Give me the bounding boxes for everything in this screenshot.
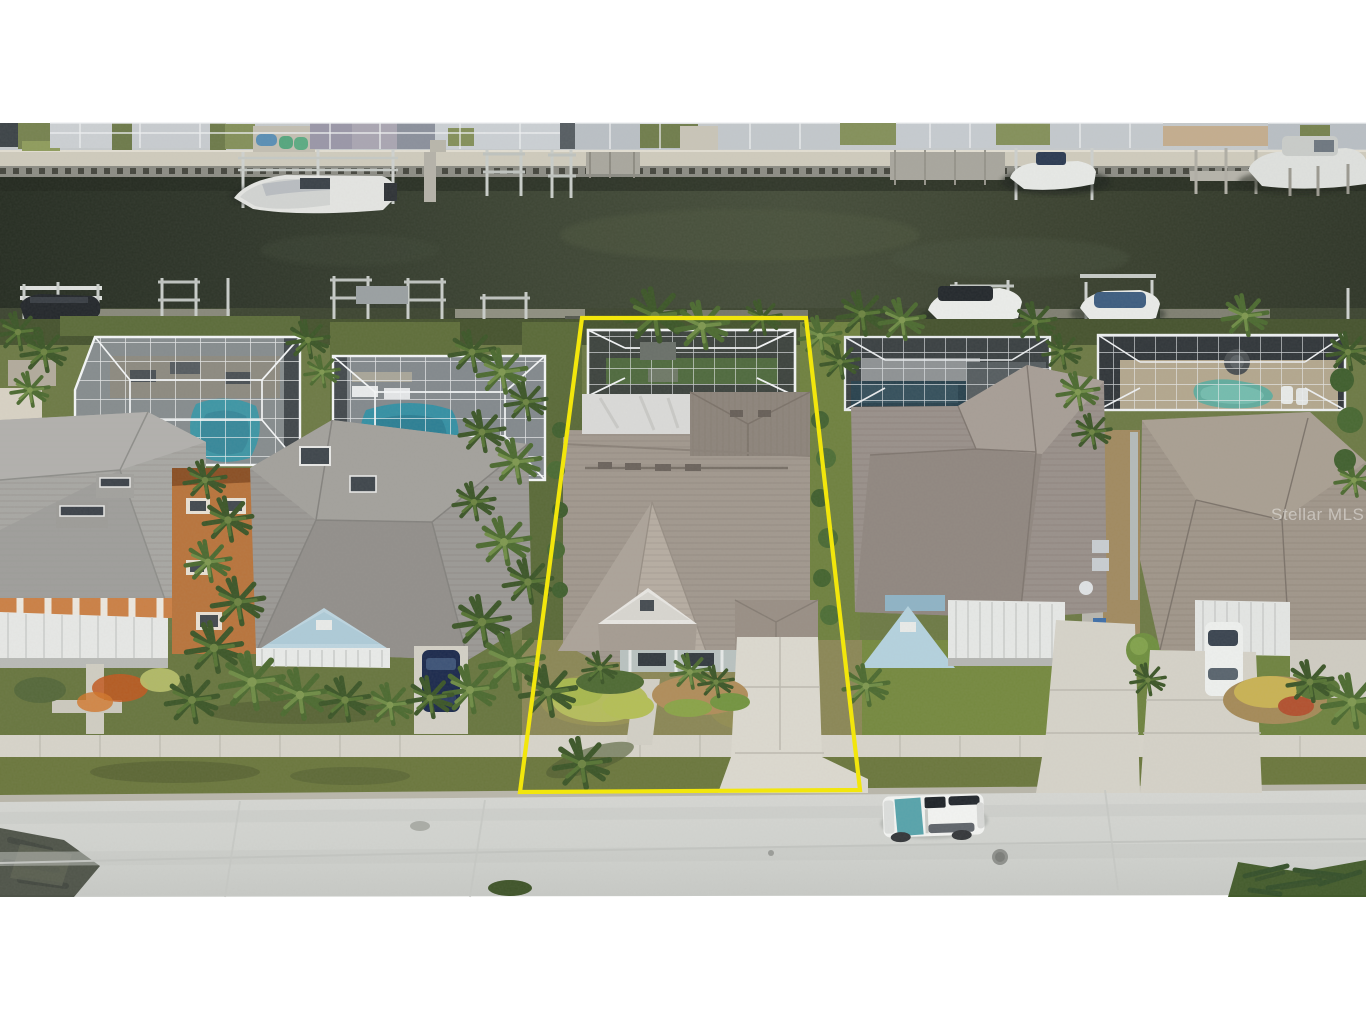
svg-text:Stellar MLS: Stellar MLS	[1271, 505, 1364, 524]
